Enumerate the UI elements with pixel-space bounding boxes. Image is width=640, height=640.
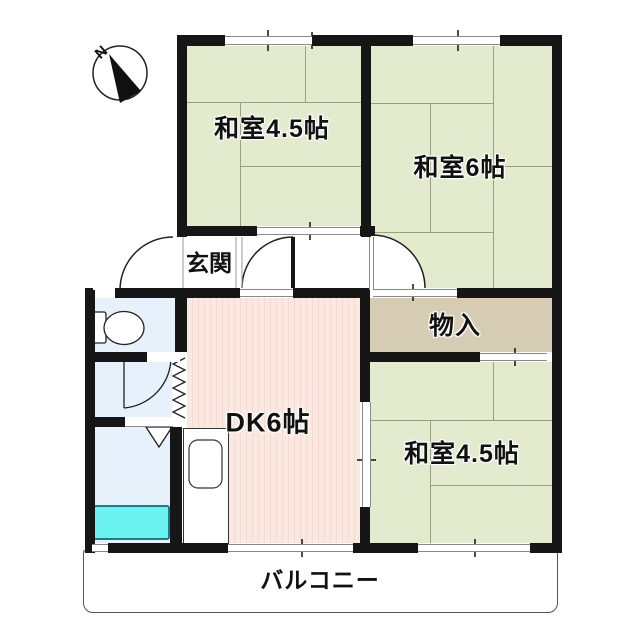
wall-segment xyxy=(361,46,371,237)
window xyxy=(228,544,353,552)
toilet-room-area xyxy=(95,298,175,352)
tatami-line xyxy=(371,103,493,104)
door-frame xyxy=(369,237,374,290)
folding-door-bg xyxy=(172,358,186,418)
window xyxy=(413,36,500,45)
room-label-entrance: 玄関 xyxy=(186,244,232,278)
hall-door-arc xyxy=(242,237,293,288)
wall-segment xyxy=(360,362,370,402)
vent-window xyxy=(92,544,108,552)
room-label-dining-kitchen: DK6帖 xyxy=(225,401,310,440)
wall-segment xyxy=(108,543,228,553)
wall-segment xyxy=(180,288,240,298)
wall-segment xyxy=(360,288,370,362)
tatami-line xyxy=(371,232,493,233)
window xyxy=(225,36,312,45)
wall-segment xyxy=(360,507,370,543)
wall-segment xyxy=(170,427,182,543)
room-label-japanese-top-right: 和室6帖 xyxy=(414,148,507,184)
sliding-door xyxy=(257,227,360,235)
hall-door-leaf xyxy=(291,237,295,288)
folding-door-icon xyxy=(173,358,185,418)
wall-segment xyxy=(177,226,257,236)
room-label-japanese-bottom-right: 和室4.5帖 xyxy=(404,434,520,470)
sliding-door xyxy=(480,353,547,361)
wall-segment xyxy=(353,543,418,553)
sliding-door xyxy=(362,402,371,507)
tatami-line xyxy=(187,102,361,103)
tatami-line xyxy=(305,46,306,102)
sliding-door xyxy=(240,289,293,297)
tatami-line xyxy=(493,362,494,420)
washroom-area xyxy=(95,362,173,417)
door-opening xyxy=(125,418,172,427)
room-label-japanese-top-left: 和室4.5帖 xyxy=(214,109,330,145)
wall-segment xyxy=(177,35,187,237)
door-opening xyxy=(147,352,180,362)
wall-segment xyxy=(457,288,552,298)
sliding-door xyxy=(373,289,457,297)
wall-segment xyxy=(360,352,480,362)
wall-segment xyxy=(552,35,562,553)
compass-north-label: N xyxy=(92,43,111,63)
kitchen-counter xyxy=(183,428,229,544)
wall-segment xyxy=(312,35,413,46)
wall-segment xyxy=(293,288,370,298)
floor-plan: N 和室4.5帖 和室6帖 玄関 物入 DK6帖 和室4.5帖 バルコニー xyxy=(0,0,640,640)
bathtub xyxy=(93,505,170,540)
tatami-line xyxy=(430,485,552,486)
tatami-line xyxy=(370,420,552,421)
wall-segment xyxy=(175,290,187,352)
wall-segment xyxy=(85,290,95,553)
room-label-storage: 物入 xyxy=(429,306,481,342)
entrance-door-arc xyxy=(120,237,173,290)
tatami-line xyxy=(240,166,361,167)
room-label-balcony: バルコニー xyxy=(260,561,380,595)
window xyxy=(418,544,530,552)
